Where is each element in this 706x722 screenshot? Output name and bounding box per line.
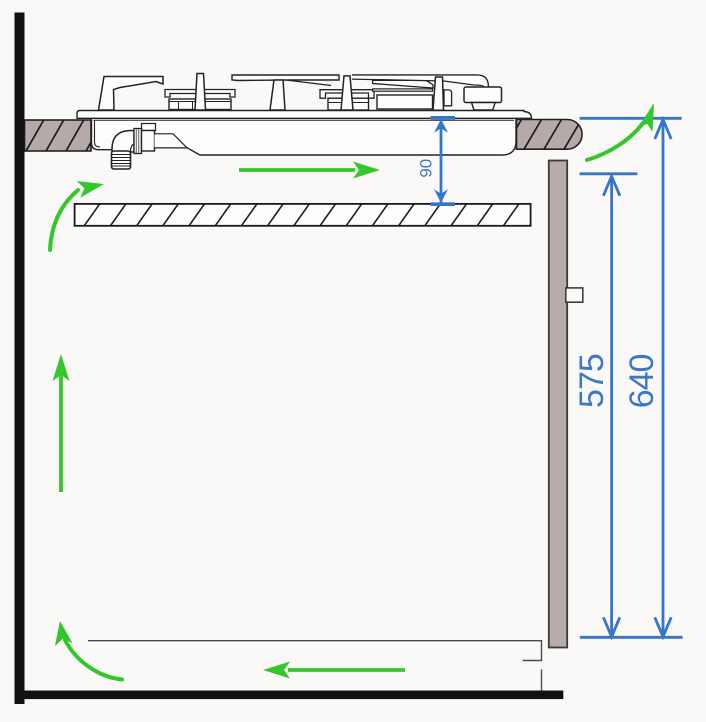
svg-text:575: 575 [573,354,611,408]
svg-text:90: 90 [417,159,436,178]
svg-text:640: 640 [623,354,661,408]
